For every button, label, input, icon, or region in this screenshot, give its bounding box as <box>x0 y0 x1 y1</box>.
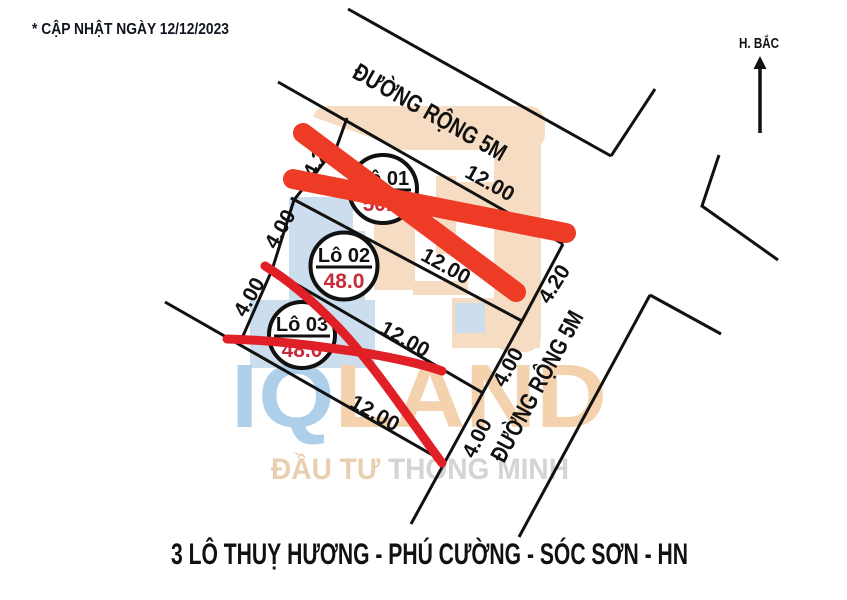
svg-text:* CẬP NHẬT NGÀY 12/12/2023: * CẬP NHẬT NGÀY 12/12/2023 <box>32 19 229 38</box>
svg-text:H. BẮC: H. BẮC <box>739 34 779 52</box>
svg-text:ĐẦU TƯ THÔNG MINH: ĐẦU TƯ THÔNG MINH <box>271 452 569 486</box>
svg-text:Lô 03: Lô 03 <box>276 314 328 336</box>
svg-text:48.0: 48.0 <box>324 270 365 293</box>
svg-text:3 LÔ THUỴ HƯƠNG - PHÚ CƯỜNG -: 3 LÔ THUỴ HƯƠNG - PHÚ CƯỜNG - SÓC SƠN - … <box>171 537 688 571</box>
svg-text:Lô 02: Lô 02 <box>318 245 370 267</box>
